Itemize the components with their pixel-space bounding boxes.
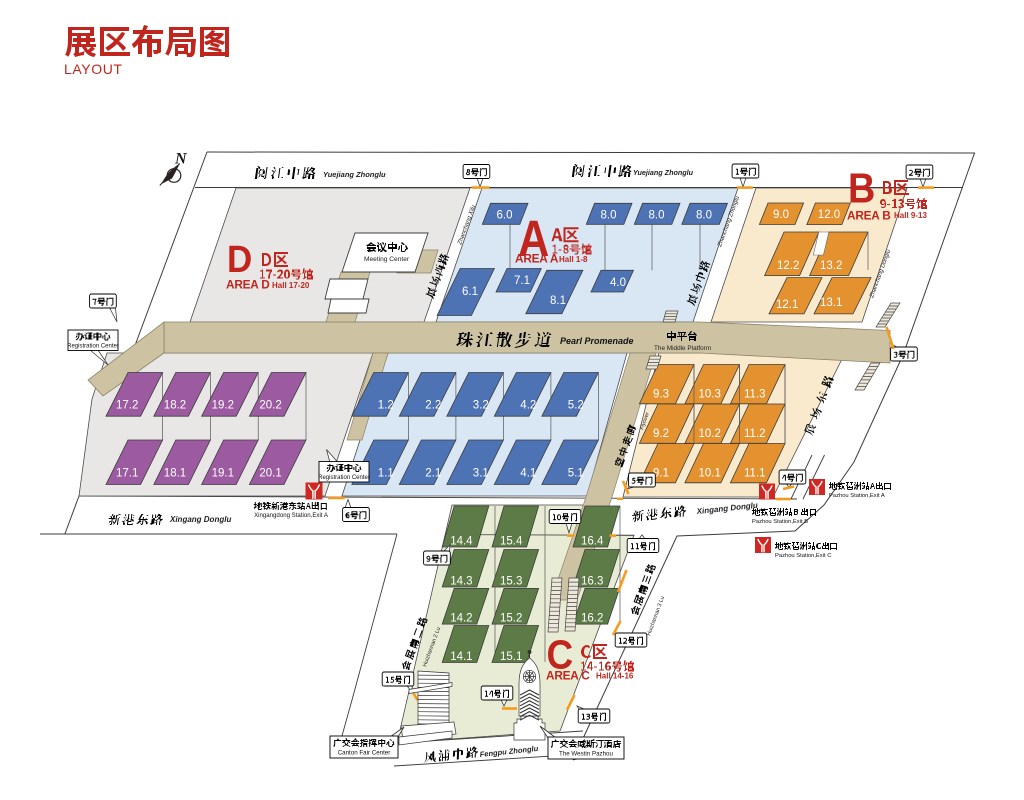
svg-text:6.0: 6.0 bbox=[497, 209, 513, 221]
svg-text:11.3: 11.3 bbox=[744, 389, 766, 401]
svg-text:1.1: 1.1 bbox=[378, 468, 394, 480]
svg-text:Pazhou Station,Exit A: Pazhou Station,Exit A bbox=[829, 493, 885, 499]
svg-text:9.2: 9.2 bbox=[653, 428, 669, 440]
svg-text:8.0: 8.0 bbox=[601, 209, 617, 221]
svg-text:Fengpu Zhonglu: Fengpu Zhonglu bbox=[479, 744, 539, 759]
svg-text:18.1: 18.1 bbox=[164, 468, 186, 480]
svg-text:The Westin Pazhou: The Westin Pazhou bbox=[559, 751, 613, 758]
svg-text:18.2: 18.2 bbox=[164, 400, 186, 412]
svg-text:19.2: 19.2 bbox=[212, 400, 234, 412]
svg-text:13.2: 13.2 bbox=[820, 260, 842, 272]
svg-text:5.2: 5.2 bbox=[568, 400, 584, 412]
svg-text:14.4: 14.4 bbox=[450, 536, 473, 548]
svg-text:9.3: 9.3 bbox=[653, 389, 669, 401]
svg-text:Hall 9-13: Hall 9-13 bbox=[894, 211, 927, 220]
svg-text:12.1: 12.1 bbox=[776, 299, 798, 311]
svg-text:14.2: 14.2 bbox=[450, 613, 472, 625]
svg-text:20.1: 20.1 bbox=[259, 468, 281, 480]
svg-text:17.2: 17.2 bbox=[116, 400, 138, 412]
svg-text:Xingangdong Station,Exit A: Xingangdong Station,Exit A bbox=[254, 512, 329, 519]
svg-text:20.2: 20.2 bbox=[259, 400, 281, 412]
svg-text:N: N bbox=[174, 151, 188, 168]
svg-text:AREA C: AREA C bbox=[546, 669, 590, 683]
svg-text:15.3: 15.3 bbox=[500, 576, 522, 588]
svg-text:15.4: 15.4 bbox=[500, 536, 523, 548]
svg-text:8.0: 8.0 bbox=[649, 209, 665, 221]
svg-text:2.1: 2.1 bbox=[425, 468, 441, 480]
svg-text:Yuejiang Zhonglu: Yuejiang Zhonglu bbox=[633, 168, 694, 177]
svg-text:Canton Fair Center: Canton Fair Center bbox=[338, 750, 391, 757]
svg-text:Xingang Donglu: Xingang Donglu bbox=[169, 515, 231, 524]
svg-text:4.2: 4.2 bbox=[520, 400, 536, 412]
svg-text:17.1: 17.1 bbox=[116, 468, 138, 480]
svg-text:14.1: 14.1 bbox=[450, 651, 472, 663]
svg-text:AREA B: AREA B bbox=[847, 209, 891, 223]
svg-text:Hall 1-8: Hall 1-8 bbox=[559, 255, 588, 264]
svg-text:16.3: 16.3 bbox=[581, 576, 603, 588]
svg-text:D: D bbox=[227, 238, 252, 281]
svg-text:11.2: 11.2 bbox=[744, 428, 766, 440]
svg-text:16.4: 16.4 bbox=[581, 536, 604, 548]
svg-text:12.0: 12.0 bbox=[818, 209, 840, 221]
svg-text:Huizhannan 3 Lu: Huizhannan 3 Lu bbox=[646, 596, 666, 637]
svg-text:11.1: 11.1 bbox=[744, 468, 766, 480]
svg-text:Xingang Donglu: Xingang Donglu bbox=[695, 501, 758, 516]
svg-text:Meeting Center: Meeting Center bbox=[364, 256, 410, 263]
svg-text:16.2: 16.2 bbox=[581, 613, 603, 625]
svg-text:2.2: 2.2 bbox=[425, 400, 441, 412]
svg-text:AREA A: AREA A bbox=[515, 252, 559, 266]
svg-text:13.1: 13.1 bbox=[820, 297, 842, 309]
svg-text:The Middle Platform: The Middle Platform bbox=[654, 345, 711, 352]
svg-text:12.2: 12.2 bbox=[777, 260, 799, 272]
svg-text:10.1: 10.1 bbox=[699, 468, 721, 480]
svg-text:Hall 17-20: Hall 17-20 bbox=[272, 281, 310, 290]
svg-text:3.2: 3.2 bbox=[473, 400, 489, 412]
svg-text:7.1: 7.1 bbox=[514, 275, 530, 287]
svg-text:15.1: 15.1 bbox=[500, 651, 522, 663]
svg-text:6.1: 6.1 bbox=[462, 286, 478, 298]
svg-text:Pearl Promenade: Pearl Promenade bbox=[560, 336, 634, 346]
svg-text:10.3: 10.3 bbox=[699, 389, 721, 401]
svg-text:B: B bbox=[848, 166, 875, 212]
svg-text:Pazhou Station,Exit C: Pazhou Station,Exit C bbox=[775, 553, 831, 559]
svg-text:Yuejiang Zhonglu: Yuejiang Zhonglu bbox=[323, 170, 386, 179]
svg-text:5.1: 5.1 bbox=[568, 468, 584, 480]
svg-text:LAYOUT: LAYOUT bbox=[64, 61, 123, 77]
svg-text:15.2: 15.2 bbox=[500, 613, 522, 625]
svg-text:Registration Center: Registration Center bbox=[318, 475, 370, 481]
svg-text:14.3: 14.3 bbox=[450, 576, 472, 588]
svg-text:Hall 14-16: Hall 14-16 bbox=[596, 672, 634, 681]
svg-text:4.1: 4.1 bbox=[520, 468, 536, 480]
svg-text:Pazhou Station,Exit B: Pazhou Station,Exit B bbox=[752, 519, 808, 525]
svg-text:10.2: 10.2 bbox=[699, 428, 721, 440]
svg-text:8.1: 8.1 bbox=[550, 295, 566, 307]
svg-text:8.0: 8.0 bbox=[696, 209, 712, 221]
svg-text:Registration Center: Registration Center bbox=[67, 344, 119, 350]
svg-text:3.1: 3.1 bbox=[473, 468, 489, 480]
svg-text:9.0: 9.0 bbox=[773, 209, 789, 221]
svg-text:1.2: 1.2 bbox=[378, 400, 394, 412]
svg-text:AREA D: AREA D bbox=[226, 278, 270, 292]
svg-text:19.1: 19.1 bbox=[212, 468, 234, 480]
svg-text:4.0: 4.0 bbox=[610, 277, 626, 289]
